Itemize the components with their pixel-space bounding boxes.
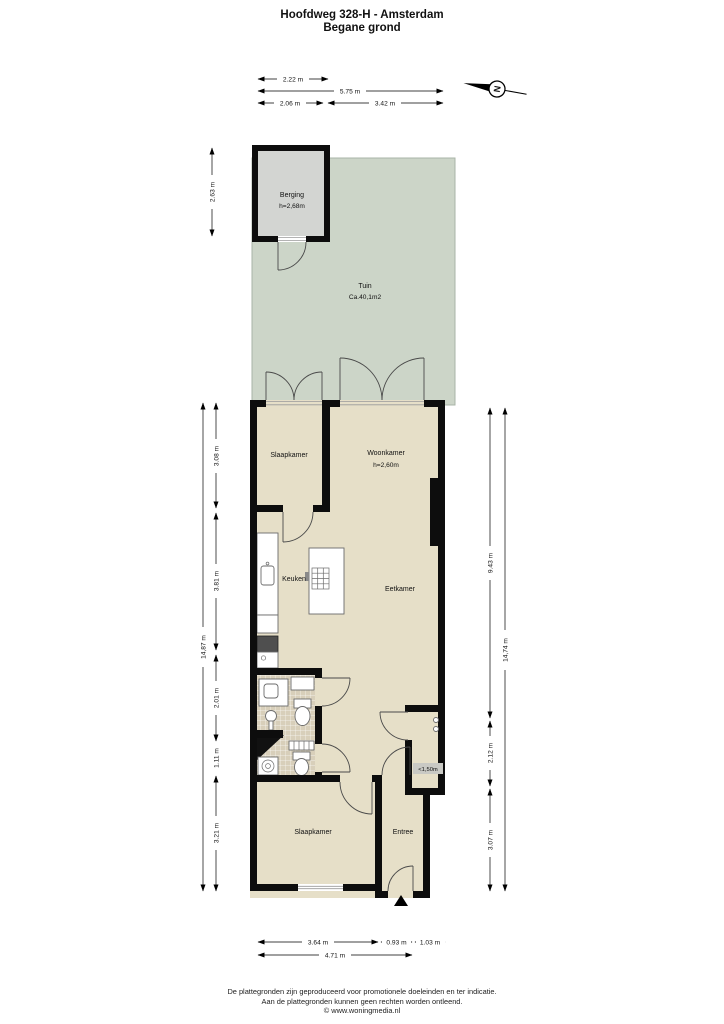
room-height-berging: h=2,68m bbox=[279, 203, 305, 210]
wall-left bbox=[250, 400, 257, 891]
washbasin-pedestal-icon bbox=[269, 721, 273, 730]
dimensions-right: 9.43 m 2.12 m 3.07 m 14,74 m bbox=[486, 408, 510, 891]
berging-door-opening bbox=[278, 236, 306, 242]
shower-tray-icon bbox=[264, 684, 278, 698]
room-label-keuken: Keuken bbox=[282, 576, 306, 583]
window-opening bbox=[298, 884, 343, 891]
dim-right-seg1: 9.43 m bbox=[487, 552, 494, 573]
wall-bedroom-south bbox=[313, 505, 330, 512]
wall-right-lower bbox=[423, 788, 430, 898]
wall-entree-bottom bbox=[375, 891, 388, 898]
chimney-breast bbox=[430, 478, 445, 546]
wall-bottom bbox=[343, 884, 382, 891]
house-floor bbox=[250, 400, 445, 898]
dim-top-berging-width: 2.22 m bbox=[283, 77, 304, 84]
wall-bathroom-east bbox=[315, 668, 322, 678]
kitchen-cabinet bbox=[257, 615, 278, 633]
washbasin-icon bbox=[266, 711, 277, 722]
dim-top-total: 5.75 m bbox=[340, 89, 361, 96]
dim-right-seg3: 3.07 m bbox=[487, 829, 494, 850]
room-label-tuin: Tuin bbox=[358, 283, 371, 290]
radiator-icon bbox=[289, 741, 314, 750]
room-area-tuin: Ca.40,1m2 bbox=[349, 294, 382, 301]
bathroom-cabinet-icon bbox=[291, 677, 314, 690]
hand-basin-cabinet bbox=[257, 652, 278, 668]
dim-top-left: 2.06 m bbox=[280, 101, 301, 108]
toilet2-bowl-icon bbox=[295, 759, 309, 776]
room-label-woonkamer: Woonkamer bbox=[367, 450, 405, 457]
dim-left-seg1: 3.08 m bbox=[213, 445, 220, 466]
meter-icon bbox=[434, 718, 439, 723]
wall-hall-south bbox=[372, 775, 382, 782]
dimensions-left: 2.63 m 14,87 m 3.08 m 3.81 m 2.01 m 1.11… bbox=[199, 148, 221, 891]
toilet-bowl-icon bbox=[295, 707, 310, 726]
footer-disclaimer: De plattegronden zijn geproduceerd voor … bbox=[0, 987, 724, 1016]
wall-entree-bottom bbox=[413, 891, 430, 898]
room-label-slaapkamer-top: Slaapkamer bbox=[270, 452, 308, 459]
dim-bottom-total: 4.71 m bbox=[325, 953, 346, 960]
dim-bottom-seg2: 0.93 m bbox=[386, 940, 407, 947]
room-label-slaapkamer-bottom: Slaapkamer bbox=[294, 829, 332, 836]
dim-bottom-seg1: 3.64 m bbox=[308, 940, 329, 947]
dim-left-total: 14,87 m bbox=[200, 635, 207, 659]
dim-top-right: 3.42 m bbox=[375, 101, 396, 108]
dimensions-bottom: 3.64 m 0.93 m 1.03 m 4.71 m bbox=[258, 938, 445, 960]
wall-bedroom-entree bbox=[375, 782, 382, 884]
dim-left-berging: 2.63 m bbox=[209, 181, 216, 202]
kitchen-sink-icon bbox=[261, 566, 274, 585]
dim-right-seg2: 2.12 m bbox=[487, 742, 494, 763]
wall-bathroom-north bbox=[250, 668, 322, 675]
meter-icon bbox=[434, 727, 439, 732]
wall-bedroom-south bbox=[250, 505, 283, 512]
wall-bathroom-east bbox=[315, 706, 322, 744]
dimensions-top: 2.22 m 5.75 m 2.06 m 3.42 m bbox=[258, 75, 443, 108]
wall-closet-north bbox=[405, 705, 445, 712]
room-label-eetkamer: Eetkamer bbox=[385, 586, 416, 593]
dim-left-seg5: 3.21 m bbox=[213, 822, 220, 843]
kitchen-island bbox=[309, 548, 344, 614]
refrigerator-icon bbox=[257, 636, 278, 652]
compass-rose: N bbox=[462, 75, 528, 102]
dim-bottom-seg3: 1.03 m bbox=[420, 940, 441, 947]
wall-hall-south bbox=[250, 775, 340, 782]
room-label-entree: Entree bbox=[393, 829, 414, 836]
footer-line3: © www.woningmedia.nl bbox=[0, 1006, 724, 1016]
wall-bedroom-living bbox=[322, 400, 330, 512]
floorplan-svg: Tuin Ca.40,1m2 Berging h=2,68m bbox=[0, 0, 724, 1024]
wall-right bbox=[438, 400, 445, 795]
room-label-berging: Berging bbox=[280, 192, 304, 199]
wall-bottom bbox=[250, 884, 298, 891]
dim-left-seg3: 2.01 m bbox=[213, 687, 220, 708]
floorplan-page: Hoofdweg 328-H - Amsterdam Begane grond … bbox=[0, 0, 724, 1024]
footer-line2: Aan de plattegronden kunnen geen rechten… bbox=[0, 997, 724, 1007]
closet-height-label: <1,50m bbox=[418, 767, 438, 773]
dim-left-seg4: 1.11 m bbox=[213, 748, 220, 768]
bathroom bbox=[257, 675, 315, 776]
room-height-woonkamer: h=2,60m bbox=[373, 462, 399, 469]
dim-left-seg2: 3.81 m bbox=[213, 570, 220, 591]
footer-line1: De plattegronden zijn geproduceerd voor … bbox=[0, 987, 724, 997]
dim-right-total: 14,74 m bbox=[502, 638, 509, 662]
wall-bathroom-mid bbox=[250, 730, 283, 738]
